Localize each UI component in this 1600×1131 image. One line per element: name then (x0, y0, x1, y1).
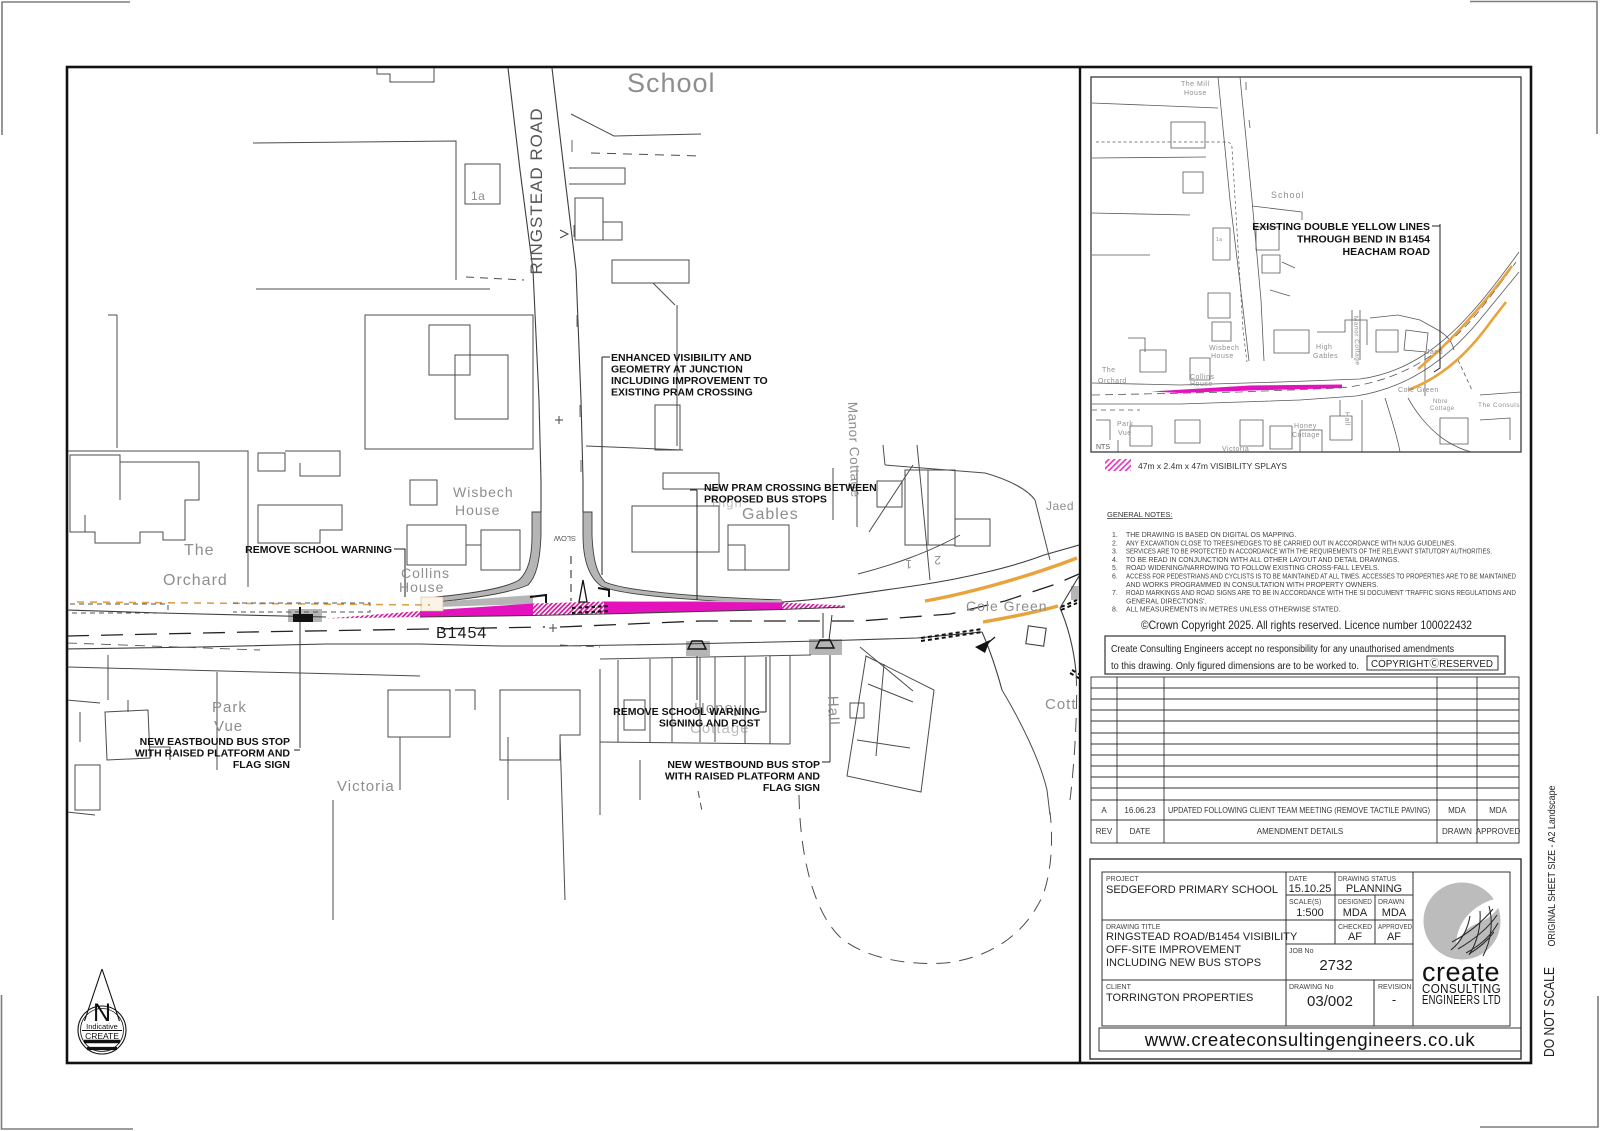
svg-text:WITH RAISED PLATFORM AND: WITH RAISED PLATFORM AND (665, 771, 821, 783)
svg-text:MDA: MDA (1489, 806, 1507, 815)
svg-text:TORRINGTON PROPERTIES: TORRINGTON PROPERTIES (1106, 992, 1253, 1004)
svg-text:The: The (184, 542, 215, 559)
svg-text:Cottage: Cottage (1430, 406, 1455, 412)
svg-text:Park: Park (212, 699, 247, 716)
svg-text:INCLUDING NEW BUS STOPS: INCLUDING NEW BUS STOPS (1106, 957, 1261, 969)
svg-text:House: House (1184, 90, 1207, 97)
svg-text:©Crown Copyright 2025. All rig: ©Crown Copyright 2025. All rights reserv… (1141, 618, 1472, 632)
svg-text:High: High (1316, 344, 1332, 351)
svg-text:Jaed: Jaed (1046, 499, 1074, 513)
svg-text:House: House (455, 502, 500, 518)
svg-text:Cott: Cott (1045, 696, 1077, 713)
svg-text:House: House (1211, 353, 1234, 360)
svg-text:TO BE READ IN CONJUNCTION WITH: TO BE READ IN CONJUNCTION WITH ALL OTHER… (1126, 557, 1399, 564)
svg-text:1: 1 (905, 557, 912, 571)
svg-text:Nbre: Nbre (1433, 399, 1448, 405)
svg-text:SIGNING AND POST: SIGNING AND POST (659, 718, 761, 730)
svg-text:Wisbech: Wisbech (453, 484, 514, 500)
svg-text:B1454: B1454 (436, 625, 487, 642)
svg-text:ANY EXCAVATION CLOSE TO TREES/: ANY EXCAVATION CLOSE TO TREES/HEDGES TO … (1126, 540, 1456, 547)
svg-text:Orchard: Orchard (1098, 378, 1127, 385)
svg-text:1a: 1a (1216, 237, 1223, 243)
svg-text:ORIGINAL SHEET SIZE - A2 Lan: ORIGINAL SHEET SIZE - A2 Landscape (1546, 785, 1558, 946)
svg-text:UPDATED FOLLOWING CLIENT TEAM: UPDATED FOLLOWING CLIENT TEAM MEETING (R… (1168, 806, 1430, 815)
svg-text:MDA: MDA (1382, 907, 1407, 919)
svg-text:REMOVE SCHOOL WARNING: REMOVE SCHOOL WARNING (245, 544, 392, 556)
svg-text:-: - (1392, 992, 1396, 1007)
svg-text:A: A (1101, 806, 1107, 815)
svg-text:SCALE(S): SCALE(S) (1289, 899, 1321, 906)
svg-text:The Mill: The Mill (1181, 81, 1210, 88)
svg-text:REV: REV (1096, 827, 1113, 836)
svg-text:GEOMETRY AT JUNCTION: GEOMETRY AT JUNCTION (611, 364, 743, 376)
svg-text:2732: 2732 (1319, 957, 1352, 974)
svg-text:MDA: MDA (1448, 806, 1466, 815)
svg-text:House: House (1190, 381, 1213, 388)
svg-text:Collins: Collins (1190, 374, 1215, 381)
svg-text:NEW WESTBOUND BUS STOP: NEW WESTBOUND BUS STOP (667, 759, 820, 771)
svg-text:Cole Green: Cole Green (966, 598, 1048, 614)
svg-text:Honey: Honey (1294, 423, 1317, 430)
svg-text:School: School (1271, 190, 1305, 200)
svg-text:ENHANCED VISIBILITY AND: ENHANCED VISIBILITY AND (611, 352, 752, 364)
svg-text:RINGSTEAD ROAD/B1454 VISIBILIT: RINGSTEAD ROAD/B1454 VISIBILITY (1106, 931, 1298, 943)
svg-text:REVISION: REVISION (1378, 984, 1411, 991)
svg-text:to this drawing. Only figured: to this drawing. Only figured dimensions… (1111, 660, 1359, 672)
svg-text:2.: 2. (1112, 540, 1118, 547)
svg-text:Orchard: Orchard (163, 572, 228, 589)
svg-text:DATE: DATE (1130, 827, 1151, 836)
svg-text:EXISTING DOUBLE YELLOW LINES: EXISTING DOUBLE YELLOW LINES (1252, 221, 1430, 233)
svg-text:Victoria: Victoria (1222, 446, 1249, 453)
svg-text:AND WORKS PROGRAMMED IN CONSUL: AND WORKS PROGRAMMED IN CONSULTATION WIT… (1126, 582, 1378, 589)
svg-text:ROAD WIDENING/NARROWING TO FOL: ROAD WIDENING/NARROWING TO FOLLOW EXISTI… (1126, 565, 1379, 572)
svg-text:SEDGEFORD PRIMARY SCHOOL: SEDGEFORD PRIMARY SCHOOL (1106, 884, 1278, 896)
svg-text:47m x 2.4m x 47m VISIBILITY SP: 47m x 2.4m x 47m VISIBILITY SPLAYS (1138, 461, 1287, 471)
svg-text:PROJECT: PROJECT (1106, 876, 1139, 883)
svg-text:The: The (1102, 367, 1116, 374)
svg-text:SLOW: SLOW (553, 534, 576, 543)
svg-text:OFF-SITE IMPROVEMENT: OFF-SITE IMPROVEMENT (1106, 944, 1241, 956)
svg-text:1:500: 1:500 (1296, 907, 1324, 919)
svg-text:NTS: NTS (1096, 444, 1110, 451)
svg-text:Jaed: Jaed (1426, 349, 1443, 356)
svg-text:THROUGH BEND IN B1454: THROUGH BEND IN B1454 (1297, 234, 1430, 246)
svg-text:NEW EASTBOUND BUS STOP: NEW EASTBOUND BUS STOP (140, 736, 290, 748)
svg-text:Vue: Vue (214, 718, 243, 735)
svg-text:JOB No: JOB No (1289, 948, 1314, 955)
svg-text:House: House (399, 579, 444, 595)
svg-text:THE DRAWING IS BASED ON DIGITA: THE DRAWING IS BASED ON DIGITAL OS MAPPI… (1126, 532, 1296, 539)
svg-text:7.: 7. (1112, 590, 1118, 597)
svg-text:GENERAL NOTES:: GENERAL NOTES: (1107, 510, 1173, 519)
svg-text:CREATE: CREATE (85, 1031, 119, 1041)
svg-text:PROPOSED BUS STOPS: PROPOSED BUS STOPS (704, 494, 827, 506)
svg-text:Park: Park (1117, 421, 1133, 428)
svg-text:Gables: Gables (742, 506, 799, 523)
svg-text:Hall: Hall (824, 696, 842, 726)
svg-text:Cole Green: Cole Green (1398, 387, 1439, 394)
svg-text:2: 2 (934, 553, 941, 567)
svg-text:DATE: DATE (1289, 876, 1307, 883)
svg-text:8.: 8. (1112, 607, 1118, 614)
svg-text:DRAWN: DRAWN (1442, 827, 1472, 836)
svg-text:3.: 3. (1112, 549, 1118, 556)
svg-text:DO NOT SCALE: DO NOT SCALE (1541, 967, 1558, 1057)
svg-text:WITH RAISED PLATFORM AND: WITH RAISED PLATFORM AND (135, 748, 291, 760)
svg-text:1a: 1a (471, 189, 485, 203)
svg-text:AF: AF (1387, 931, 1401, 943)
svg-text:AMENDMENT DETAILS: AMENDMENT DETAILS (1257, 827, 1343, 836)
svg-text:INCLUDING IMPROVEMENT TO: INCLUDING IMPROVEMENT TO (611, 375, 768, 387)
svg-text:Wisbech: Wisbech (1209, 345, 1239, 352)
svg-text:03/002: 03/002 (1307, 993, 1353, 1010)
svg-text:Indicative: Indicative (86, 1022, 118, 1031)
svg-text:The Consuls H: The Consuls H (1478, 402, 1528, 409)
svg-text:CHECKED: CHECKED (1338, 924, 1372, 931)
svg-text:DRAWING TITLE: DRAWING TITLE (1106, 924, 1161, 931)
svg-text:Hall: Hall (1343, 412, 1350, 426)
svg-text:Vue: Vue (1118, 430, 1132, 437)
svg-text:MDA: MDA (1343, 907, 1368, 919)
svg-text:6.: 6. (1112, 574, 1118, 581)
svg-text:COPYRIGHTⒸRESERVED: COPYRIGHTⒸRESERVED (1371, 658, 1493, 670)
svg-text:DRAWING STATUS: DRAWING STATUS (1338, 876, 1396, 883)
svg-text:CLIENT: CLIENT (1106, 984, 1132, 991)
svg-text:4.: 4. (1112, 557, 1118, 564)
svg-text:APPROVED: APPROVED (1378, 924, 1412, 931)
svg-text:Create Consulting Engineers ac: Create Consulting Engineers accept no re… (1111, 643, 1454, 655)
svg-text:15.10.25: 15.10.25 (1289, 883, 1332, 895)
svg-text:www.createconsultingengineers.: www.createconsultingengineers.co.uk (1144, 1029, 1476, 1050)
svg-text:REMOVE SCHOOL WARNING: REMOVE SCHOOL WARNING (613, 706, 760, 718)
svg-text:Gables: Gables (1313, 353, 1338, 360)
svg-text:ROAD MARKINGS AND ROAD SIGNS A: ROAD MARKINGS AND ROAD SIGNS ARE TO BE I… (1126, 590, 1516, 597)
svg-text:FLAG SIGN: FLAG SIGN (233, 759, 290, 771)
svg-text:GENERAL DIRECTIONS'.: GENERAL DIRECTIONS'. (1126, 598, 1206, 605)
svg-text:SERVICES ARE TO BE PROTECTED I: SERVICES ARE TO BE PROTECTED IN ACCORDAN… (1126, 549, 1492, 556)
svg-text:DRAWING No: DRAWING No (1289, 984, 1334, 991)
svg-text:School: School (627, 68, 716, 98)
svg-text:FLAG SIGN: FLAG SIGN (763, 782, 820, 794)
svg-text:HEACHAM ROAD: HEACHAM ROAD (1343, 246, 1431, 258)
svg-text:PLANNING: PLANNING (1346, 883, 1402, 895)
svg-text:APPROVED: APPROVED (1476, 827, 1521, 836)
svg-text:EXISTING PRAM CROSSING: EXISTING PRAM CROSSING (611, 387, 753, 399)
svg-text:RINGSTEAD ROAD: RINGSTEAD ROAD (527, 107, 546, 274)
svg-text:NEW PRAM CROSSING BETWEEN: NEW PRAM CROSSING BETWEEN (704, 482, 877, 494)
svg-text:DRAWN: DRAWN (1378, 899, 1404, 906)
svg-text:16.06.23: 16.06.23 (1124, 806, 1156, 815)
svg-text:ENGINEERS LTD: ENGINEERS LTD (1422, 993, 1501, 1007)
svg-text:DESIGNED: DESIGNED (1338, 899, 1372, 906)
svg-text:Victoria: Victoria (337, 778, 395, 795)
svg-text:AF: AF (1348, 931, 1362, 943)
svg-text:1.: 1. (1112, 532, 1118, 539)
svg-text:5.: 5. (1112, 565, 1118, 572)
svg-text:Cottage: Cottage (1292, 432, 1320, 439)
svg-text:ACCESS FOR PEDESTRIANS AND CYC: ACCESS FOR PEDESTRIANS AND CYCLISTS IS T… (1126, 574, 1516, 581)
svg-text:ALL MEASUREMENTS IN METRES UNL: ALL MEASUREMENTS IN METRES UNLESS OTHERW… (1126, 607, 1341, 614)
